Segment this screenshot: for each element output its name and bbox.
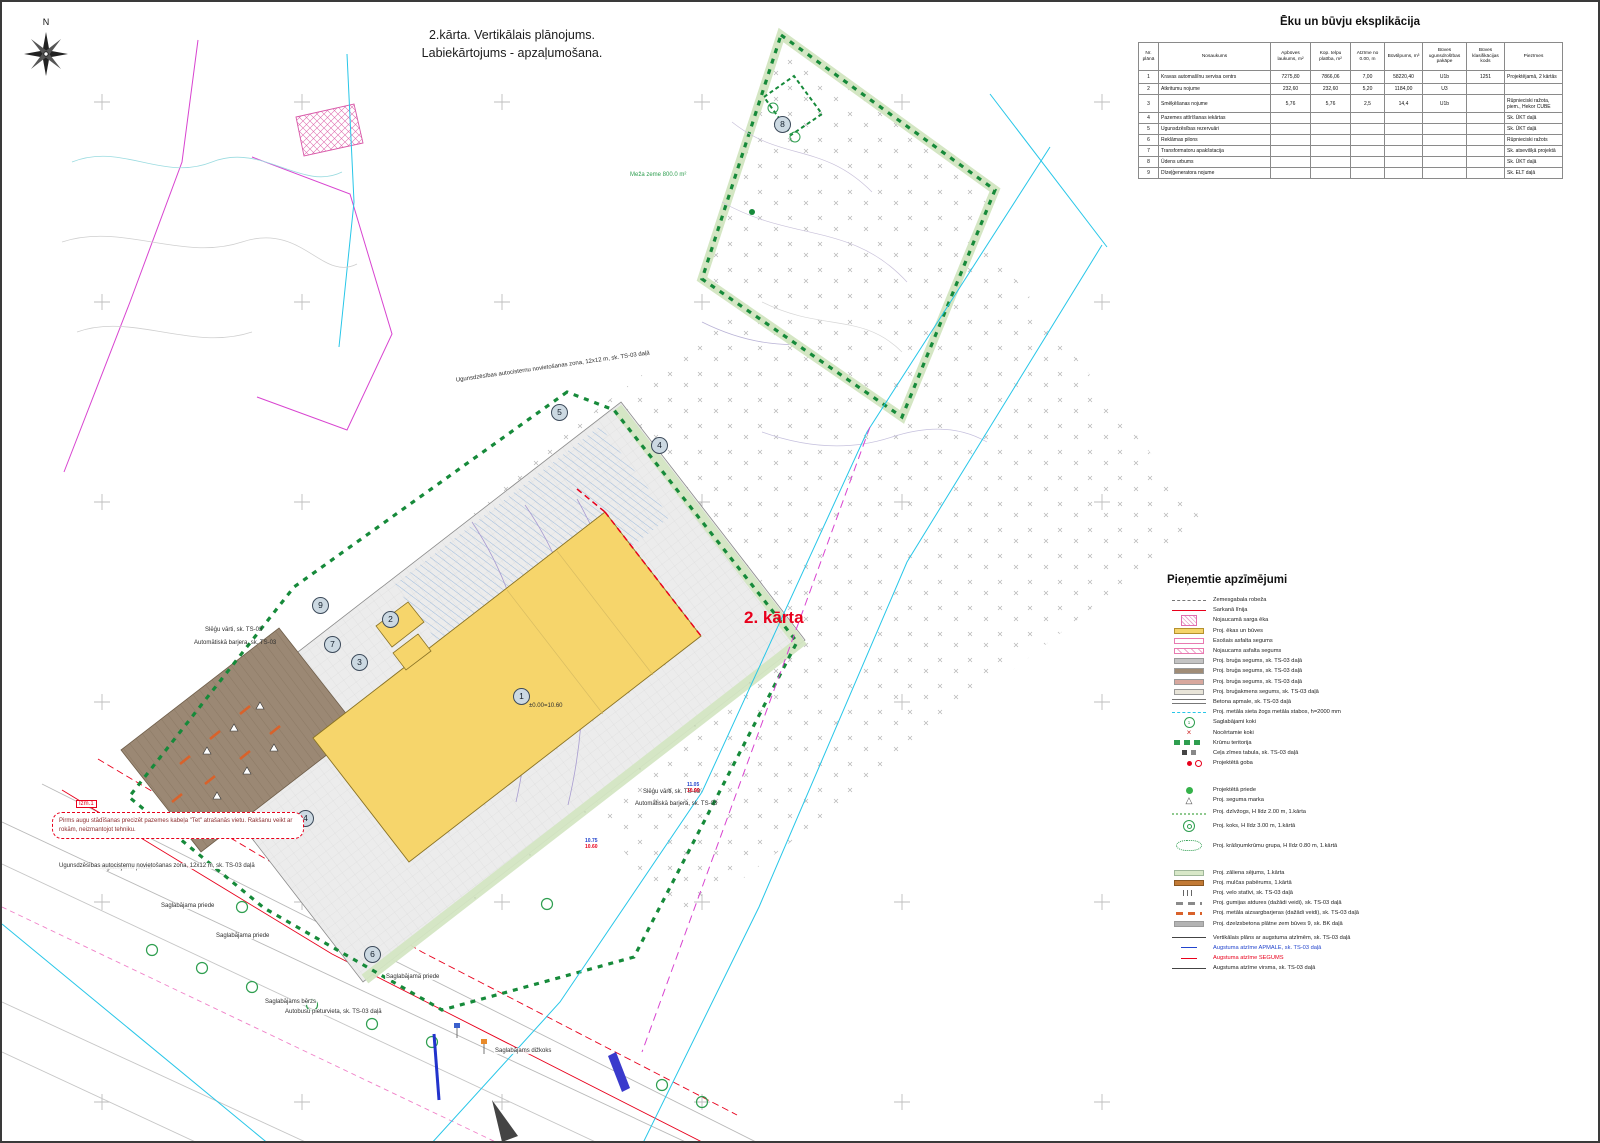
mesh-fence-icon	[1165, 712, 1213, 713]
table-row: 2Atkritumu nojume 232,60232,60 5,201184,…	[1139, 84, 1563, 95]
lawn-swatch-icon	[1165, 870, 1213, 876]
table-header: Nosaukums	[1159, 43, 1271, 71]
building-marker: 4	[651, 437, 668, 454]
drawing-sheet: N 2.kārta. Vertikālais plānojums. Labiek…	[0, 0, 1600, 1143]
legend-item: Betona apmale, sk. TS-03 daļā	[1165, 697, 1425, 707]
legend-item: Proj. zāliena sējums, 1.kārta	[1165, 868, 1425, 878]
compass-rose-icon: N	[18, 16, 74, 84]
curb-elevation-icon	[1165, 947, 1213, 948]
svg-text:N: N	[43, 17, 50, 27]
plan-label-bus-stop: Autobusu pieturvieta, sk. TS-03 daļā	[284, 1009, 383, 1015]
legend-item: Proj. dzelzsbetona plātne zem būves 9, s…	[1165, 919, 1425, 929]
paving-gray-icon	[1165, 658, 1213, 664]
legend-item: Proj. velo statīvi, sk. TS-03 daļā	[1165, 888, 1425, 898]
legend-item: Nojaucamā sarga ēka	[1165, 615, 1425, 625]
drawing-title-line1: 2.kārta. Vertikālais plānojums.	[362, 26, 662, 44]
plan-label-barrier-left: Automātiskā barjera, sk. TS-03	[194, 640, 276, 646]
table-row: 8Ūdens urbums Sk. ŪKT daļā	[1139, 157, 1563, 168]
table-header: Nr. plānā	[1139, 43, 1159, 71]
road-signs-icon	[1165, 750, 1213, 755]
concrete-curb-icon	[1165, 699, 1213, 704]
paving-stone-icon	[1165, 689, 1213, 695]
plan-label-big-tree: Saglabājams dižkoks	[494, 1048, 552, 1054]
planted-tree-icon	[1165, 820, 1213, 832]
ground-elevation-icon	[1165, 968, 1213, 969]
legend-item: Proj. metāla aizsargbarjeras (dažādi vei…	[1165, 908, 1425, 918]
felled-tree-icon: ×	[1165, 729, 1213, 737]
table-header: Būvtilpums, m³	[1385, 43, 1423, 71]
table-header: Atzīme no 0.00, m	[1351, 43, 1385, 71]
table-header: Būves ugunsdrošības pakāpe	[1423, 43, 1467, 71]
building-marker: 5	[551, 404, 568, 421]
building-marker: 2	[382, 611, 399, 628]
legend-item: Augstuma atzīme SEGUMS	[1165, 953, 1425, 963]
legend-item: Vertikālais plāns ar augstuma atzīmēm, s…	[1165, 933, 1425, 943]
legend-item: Proj. ēkas un būves	[1165, 626, 1425, 636]
hedge-icon	[1165, 809, 1213, 815]
bike-rack-icon	[1165, 890, 1213, 896]
plan-label-barrier-right: Automātiskā barjera, sk. TS-03	[635, 801, 717, 807]
plan-label-gate-left: Slēģu vārti, sk. TS-03	[205, 627, 262, 633]
legend-item: Esošais asfalta segums	[1165, 636, 1425, 646]
legend: Pieņemtie apzīmējumi Zemesgabala robeža …	[1165, 574, 1425, 973]
plan-label-birch: Saglabājams bērzs	[264, 999, 317, 1005]
table-row: 6Reklāmas pilons Rūpnieciski ražots	[1139, 135, 1563, 146]
legend-item: Sarkanā līnija	[1165, 605, 1425, 615]
building-marker: 8	[774, 116, 791, 133]
legend-item: Proj. bruģa segums, sk. TS-03 daļā	[1165, 677, 1425, 687]
drawing-title-line2: Labiekārtojums - apzaļumošana.	[362, 44, 662, 62]
table-header: Kop. telpu platība, m²	[1311, 43, 1351, 71]
plan-label-fire-zone-bottom: Ugunsdzēsības autocisternu novietošanas …	[58, 863, 256, 869]
elevation-mark: 11.05 10.90	[687, 782, 700, 794]
concrete-slab-icon	[1165, 921, 1213, 927]
building-swatch-icon	[1165, 628, 1213, 634]
building-marker: 7	[324, 636, 341, 653]
existing-asphalt-icon	[1165, 638, 1213, 644]
drawing-title: 2.kārta. Vertikālais plānojums. Labiekār…	[362, 26, 662, 62]
paving-brown-icon	[1165, 668, 1213, 674]
legend-item: Augstuma atzīme virsma, sk. TS-03 daļā	[1165, 963, 1425, 973]
vertical-plan-icon	[1165, 937, 1213, 938]
table-title: Ēku un būvju eksplikācija	[1138, 16, 1562, 28]
plan-label-datum: ±0.00=10.60	[529, 703, 563, 709]
legend-item: Krūmu teritorija	[1165, 738, 1425, 748]
legend-item: Augstuma atzīme APMALE, sk. TS-03 daļā	[1165, 943, 1425, 953]
table-row: 1Kravas automašīnu servisa centrs 7275,8…	[1139, 71, 1563, 84]
plan-label-pine-2: Saglabājama priede	[160, 903, 215, 909]
building-marker: 6	[364, 946, 381, 963]
mulch-swatch-icon	[1165, 880, 1213, 886]
revision-tag: Izm.1	[76, 800, 97, 808]
legend-item: Proj. mulčas pabērums, 1.kārtā	[1165, 878, 1425, 888]
legend-item: Proj. gumijas atdures (dažādi veidi), sk…	[1165, 898, 1425, 908]
shrub-territory-icon	[1165, 740, 1213, 745]
legend-item: Proj. bruģa segums, sk. TS-03 daļā	[1165, 656, 1425, 666]
legend-item: Proj. metāla sieta žogs metāla stabos, h…	[1165, 707, 1425, 717]
paving-rose-icon	[1165, 679, 1213, 685]
plan-label-pine-3: Saglabājama priede	[215, 933, 270, 939]
building-marker: 3	[351, 654, 368, 671]
preserved-tree-icon: 1	[1165, 717, 1213, 728]
surface-elevation-icon	[1165, 958, 1213, 959]
legend-item: △Proj. seguma marka	[1165, 795, 1425, 805]
red-line-icon	[1165, 610, 1213, 611]
table-header-row: Nr. plānā Nosaukums Apbūves laukums, m² …	[1139, 43, 1563, 71]
legend-item: Projektētā goba	[1165, 758, 1425, 768]
legend-item: Zemesgabala robeža	[1165, 595, 1425, 605]
legend-item: Projektētā priede	[1165, 785, 1425, 795]
table-header: Piezīmes	[1505, 43, 1563, 71]
legend-item: Proj. dzīvžogs, H līdz 2.00 m, 1.kārta	[1165, 806, 1425, 819]
table-header: Būves klasifikācijas kods	[1467, 43, 1505, 71]
legend-title: Pieņemtie apzīmējumi	[1167, 574, 1425, 586]
table-row: 9Dīzeļģeneratora nojume Sk. ELT daļā	[1139, 168, 1563, 179]
legend-item: Proj. koks, H līdz 3.00 m, 1.kārtā	[1165, 819, 1425, 834]
plan-label-pine-4: Saglabājama priede	[385, 974, 440, 980]
planted-elm-icon	[1165, 761, 1213, 766]
table-row: 3Smēķēšanas nojume 5,765,76 2,514,4 U1b …	[1139, 95, 1563, 113]
explication-table: Nr. plānā Nosaukums Apbūves laukums, m² …	[1138, 42, 1563, 179]
legend-item: Proj. bruģa segums, sk. TS-03 daļā	[1165, 666, 1425, 676]
revision-callout: Pirms augu stādīšanas precizēt pazemes k…	[52, 812, 304, 839]
demolish-building-icon	[1165, 615, 1213, 626]
legend-item: Ceļa zīmes tabula, sk. TS-03 daļā	[1165, 748, 1425, 758]
table-header: Apbūves laukums, m²	[1271, 43, 1311, 71]
phase-label: 2. kārta	[744, 608, 804, 628]
rubber-stop-icon	[1165, 902, 1213, 905]
legend-item: 1Saglabājami koki	[1165, 717, 1425, 727]
table-row: 7Transformatoru apakšstacija Sk. atseviš…	[1139, 146, 1563, 157]
building-marker: 1	[513, 688, 530, 705]
plot-boundary-icon	[1165, 600, 1213, 601]
building-marker: 9	[312, 597, 329, 614]
shrub-group-icon	[1165, 840, 1213, 851]
legend-item: Proj. krāšņumkrūmu grupa, H līdz 0.80 m,…	[1165, 834, 1425, 858]
legend-item: ×Nocērtamie koki	[1165, 727, 1425, 737]
elevation-mark: 10.75 10.60	[585, 838, 598, 850]
legend-item: Proj. bruģakmens segums, sk. TS-03 daļā	[1165, 687, 1425, 697]
plan-label-forest: Meža zeme 800.0 m²	[630, 172, 686, 178]
planted-pine-icon	[1165, 787, 1213, 794]
table-row: 4Pazemes attīrīšanas iekārtas Sk. ŪKT da…	[1139, 113, 1563, 124]
guard-barrier-icon	[1165, 912, 1213, 915]
demolish-asphalt-icon	[1165, 648, 1213, 654]
table-row: 5Ugunsdzēsības rezervuāri Sk. ŪKT daļā	[1139, 124, 1563, 135]
pavement-mark-icon: △	[1165, 796, 1213, 805]
legend-item: Nojaucams asfalta segums	[1165, 646, 1425, 656]
